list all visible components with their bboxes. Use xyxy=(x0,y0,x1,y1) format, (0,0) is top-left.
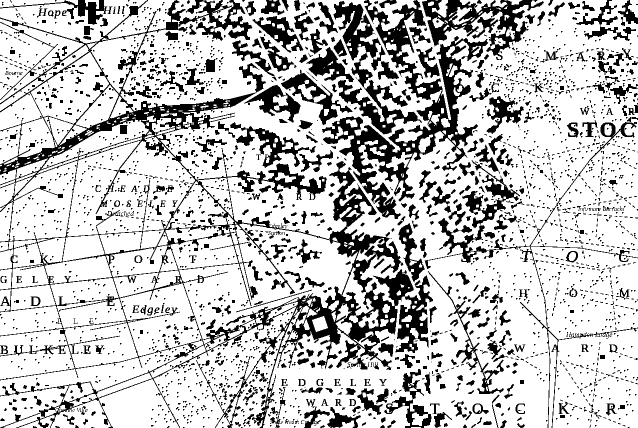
svg-text:E: E xyxy=(89,317,94,326)
svg-text:U: U xyxy=(14,342,24,357)
svg-text:Station: Station xyxy=(268,231,285,237)
svg-text:T: T xyxy=(521,247,532,266)
svg-text:W: W xyxy=(514,341,526,355)
svg-text:K: K xyxy=(534,80,544,95)
svg-text:C: C xyxy=(624,7,632,21)
svg-text:P: P xyxy=(108,252,115,266)
svg-text:R: R xyxy=(606,401,617,418)
svg-text:Edgeley: Edgeley xyxy=(267,224,288,230)
svg-text:C: C xyxy=(515,401,526,418)
svg-text:M: M xyxy=(619,286,630,300)
svg-text:E: E xyxy=(106,294,115,310)
svg-text:A: A xyxy=(576,49,586,64)
svg-text:E: E xyxy=(281,377,288,389)
svg-text:E: E xyxy=(83,342,91,357)
svg-text:S: S xyxy=(385,401,394,418)
svg-text:C: C xyxy=(618,247,630,266)
svg-text:A: A xyxy=(0,294,11,310)
svg-text:T P D: T P D xyxy=(256,153,280,162)
svg-text:E: E xyxy=(48,275,54,286)
svg-text:O: O xyxy=(455,81,464,96)
svg-text:D: D xyxy=(298,377,306,389)
svg-text:W: W xyxy=(252,192,261,202)
svg-text:M O S E L E Y: M O S E L E Y xyxy=(99,199,179,209)
svg-text:K: K xyxy=(44,342,54,357)
svg-text:Cheadle Villa: Cheadle Villa xyxy=(55,408,88,414)
svg-text:G: G xyxy=(316,377,324,389)
svg-text:W: W xyxy=(127,275,137,286)
svg-text:G: G xyxy=(0,275,7,286)
svg-text:D: D xyxy=(609,341,618,355)
svg-text:D: D xyxy=(197,275,204,286)
svg-text:K: K xyxy=(558,401,570,418)
svg-text:R: R xyxy=(296,192,302,202)
svg-text:S: S xyxy=(461,247,470,266)
svg-text:Shaw Heath Cottage: Shaw Heath Cottage xyxy=(270,420,320,426)
svg-text:D: D xyxy=(30,294,41,310)
svg-text:R: R xyxy=(597,48,606,63)
svg-text:Y: Y xyxy=(64,275,71,286)
svg-text:Detached: Detached xyxy=(106,210,134,218)
svg-text:T: T xyxy=(189,252,197,266)
svg-text:L: L xyxy=(71,342,79,357)
svg-text:Y: Y xyxy=(622,46,632,61)
svg-text:L: L xyxy=(32,275,38,286)
svg-text:Edgeley: Edgeley xyxy=(131,302,178,316)
svg-text:O: O xyxy=(472,401,484,418)
svg-text:M: M xyxy=(545,48,557,63)
svg-text:A: A xyxy=(321,398,329,409)
svg-text:L: L xyxy=(350,377,357,389)
svg-text:Infirmary Barracks: Infirmary Barracks xyxy=(577,206,625,213)
svg-text:Hill: Hill xyxy=(102,3,126,17)
svg-text:C H E A D L E: C H E A D L E xyxy=(95,184,175,194)
svg-text:Y: Y xyxy=(379,377,387,389)
svg-text:L: L xyxy=(73,317,78,326)
svg-text:R: R xyxy=(335,398,342,409)
svg-text:C: C xyxy=(491,80,500,95)
svg-text:R: R xyxy=(581,341,589,355)
svg-text:E: E xyxy=(58,342,66,357)
svg-text:R: R xyxy=(175,275,182,286)
svg-text:E: E xyxy=(57,317,62,326)
svg-text:W: W xyxy=(306,398,316,409)
svg-text:B: B xyxy=(0,342,9,357)
svg-text:L: L xyxy=(29,342,37,357)
svg-text:C: C xyxy=(10,252,18,266)
svg-text:Spring Hill: Spring Hill xyxy=(347,361,378,369)
svg-text:H: H xyxy=(519,286,528,300)
svg-text:L: L xyxy=(58,294,67,310)
svg-text:S: S xyxy=(496,48,503,63)
svg-text:Hope: Hope xyxy=(37,5,68,19)
svg-text:A: A xyxy=(551,341,560,355)
svg-text:O: O xyxy=(134,252,143,266)
svg-text:D: D xyxy=(349,398,356,409)
svg-text:O: O xyxy=(569,286,578,300)
svg-text:A: A xyxy=(277,192,284,202)
svg-text:STOC: STOC xyxy=(567,117,638,142)
svg-text:Y: Y xyxy=(95,342,105,357)
svg-text:O: O xyxy=(566,247,578,266)
svg-text:T: T xyxy=(430,401,440,418)
svg-text:Hampden Lodge: Hampden Lodge xyxy=(565,331,612,339)
svg-text:E: E xyxy=(334,377,341,389)
svg-text:R: R xyxy=(161,252,169,266)
svg-text:E: E xyxy=(364,377,371,389)
svg-text:E: E xyxy=(16,275,22,286)
svg-text:K: K xyxy=(40,252,49,266)
svg-text:D: D xyxy=(309,192,316,202)
svg-text:A: A xyxy=(151,275,159,286)
svg-text:Bourne: Bourne xyxy=(5,71,23,77)
